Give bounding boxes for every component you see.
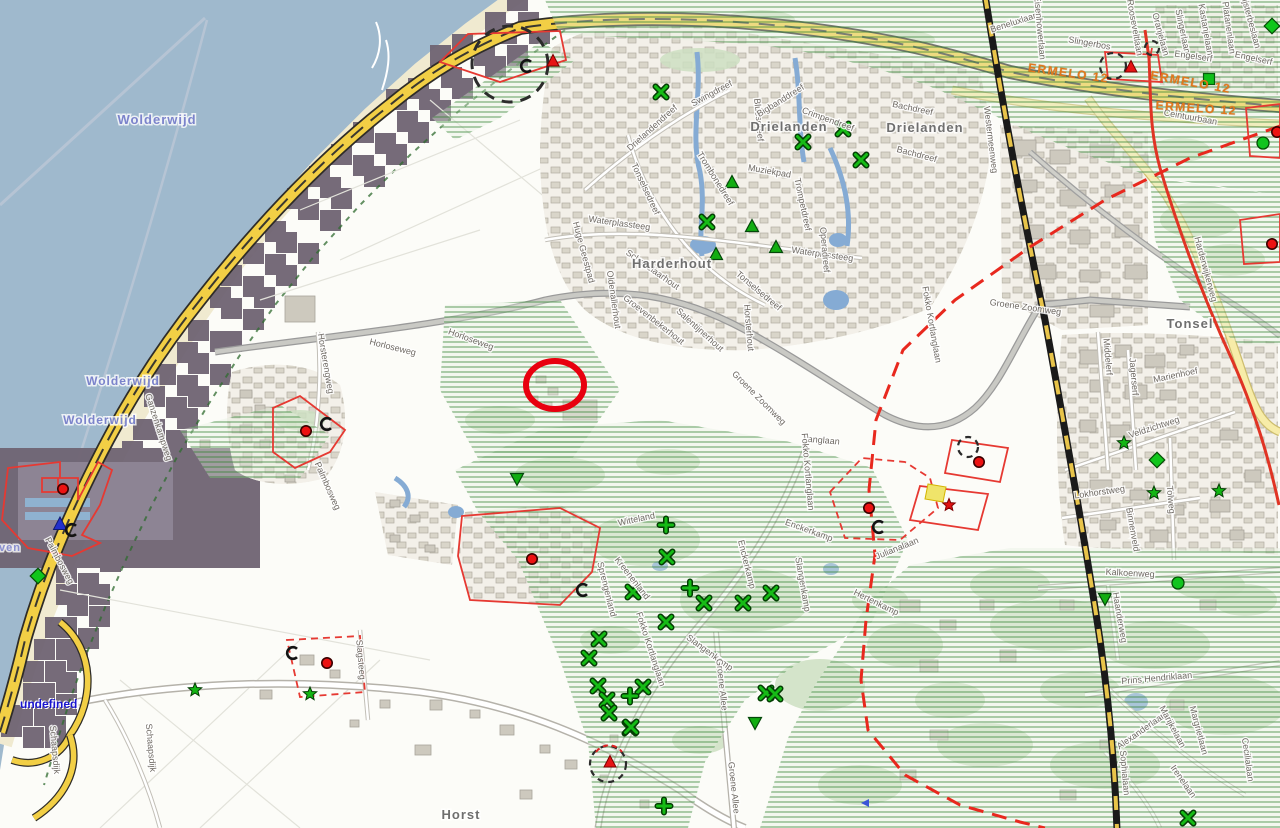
map-geometry xyxy=(140,548,160,568)
marker-green-x[interactable] xyxy=(856,155,867,166)
map-geometry xyxy=(23,727,44,748)
marker-green-x[interactable] xyxy=(662,552,673,563)
place-label: Harderhout xyxy=(632,256,712,271)
map-geometry xyxy=(220,528,240,548)
map-geometry xyxy=(240,548,260,568)
map-geometry xyxy=(1172,577,1184,589)
marker-green-x[interactable] xyxy=(702,217,713,228)
map-geometry xyxy=(0,448,20,468)
marker-red-dot[interactable] xyxy=(527,554,537,564)
map-geometry xyxy=(188,320,209,341)
marker-green-x[interactable] xyxy=(1183,813,1194,824)
marker-red-dot[interactable] xyxy=(1272,127,1280,137)
building xyxy=(330,670,340,678)
map-geometry xyxy=(298,243,319,264)
map-geometry xyxy=(220,488,240,508)
map-geometry xyxy=(276,232,297,253)
map-geometry xyxy=(180,528,200,548)
marker-green-x[interactable] xyxy=(798,137,809,148)
marker-green-x[interactable] xyxy=(770,689,781,700)
map-geometry xyxy=(89,606,110,627)
pond xyxy=(829,233,847,247)
map-geometry xyxy=(200,548,220,568)
building xyxy=(1125,265,1147,279)
map-geometry xyxy=(188,353,209,374)
marker-green-x[interactable] xyxy=(661,617,672,628)
map-geometry xyxy=(180,508,200,528)
marker-red-dot[interactable] xyxy=(322,658,332,668)
map-geometry xyxy=(1272,127,1280,137)
place-label: Drielanden xyxy=(886,120,963,135)
marker-green-x[interactable] xyxy=(626,722,637,733)
map-geometry xyxy=(120,548,140,568)
building xyxy=(390,500,400,507)
building xyxy=(350,720,359,727)
place-label: Horst xyxy=(442,807,481,822)
map-geometry xyxy=(89,584,110,605)
marina-water xyxy=(25,512,90,520)
marker-green-x[interactable] xyxy=(604,708,615,719)
marker-red-dot[interactable] xyxy=(864,503,874,513)
map-geometry xyxy=(180,548,200,568)
map-geometry xyxy=(301,426,311,436)
map-geometry xyxy=(188,386,209,407)
building xyxy=(1145,355,1165,367)
map-geometry xyxy=(20,548,40,568)
building xyxy=(1210,500,1230,512)
map-geometry xyxy=(1267,239,1277,249)
building xyxy=(390,535,400,542)
building xyxy=(410,515,420,522)
marker-green-x[interactable] xyxy=(766,588,777,599)
marker-green-x[interactable] xyxy=(638,682,649,693)
building xyxy=(1100,520,1116,530)
marker-red-dot[interactable] xyxy=(301,426,311,436)
map-geometry xyxy=(34,639,55,660)
building xyxy=(1150,530,1168,542)
marker-green-x[interactable] xyxy=(699,598,710,609)
marker-red-dot[interactable] xyxy=(974,457,984,467)
building xyxy=(425,545,435,552)
building xyxy=(540,745,550,753)
building xyxy=(430,700,442,710)
map-geometry xyxy=(1257,137,1269,149)
marker-green-x[interactable] xyxy=(738,598,749,609)
map-geometry xyxy=(221,298,242,319)
place-label: Wolderwijd xyxy=(63,413,137,427)
building xyxy=(1050,150,1070,164)
map-geometry xyxy=(527,554,537,564)
marker-green-x[interactable] xyxy=(656,87,667,98)
building xyxy=(415,745,431,755)
building xyxy=(1090,305,1114,317)
map-geometry xyxy=(240,488,260,508)
building xyxy=(470,710,480,718)
building xyxy=(380,700,390,708)
highlighted-building[interactable] xyxy=(925,484,946,502)
map-geometry xyxy=(200,488,220,508)
building xyxy=(1080,420,1096,432)
map-geometry xyxy=(331,188,352,209)
marker-green-x[interactable] xyxy=(584,653,595,664)
building xyxy=(520,790,532,799)
map-geometry xyxy=(507,0,528,11)
place-label: Tonsel xyxy=(1167,316,1214,331)
pond xyxy=(823,290,849,310)
place-label: Wolderwijd xyxy=(86,374,160,388)
building xyxy=(1070,230,1090,244)
map-geometry xyxy=(177,408,198,429)
map-geometry xyxy=(160,548,180,568)
map-geometry xyxy=(100,548,120,568)
map-geometry xyxy=(320,210,341,231)
map-viewport[interactable]: PalmboswegPalmboswegGanzenkampwegHorster… xyxy=(0,0,1280,828)
building xyxy=(1180,345,1194,355)
marker-green-x[interactable] xyxy=(593,681,604,692)
status-text: undefined xyxy=(20,697,77,711)
map-geometry xyxy=(200,508,220,528)
map-geometry xyxy=(974,457,984,467)
marker-green-x[interactable] xyxy=(602,695,613,706)
map-geometry xyxy=(58,484,68,494)
marker-green-circle[interactable] xyxy=(1257,137,1269,149)
map-canvas[interactable]: PalmboswegPalmboswegGanzenkampwegHorster… xyxy=(0,0,1280,828)
marker-red-dot[interactable] xyxy=(1267,239,1277,249)
building xyxy=(300,655,314,665)
building xyxy=(1130,490,1148,500)
map-geometry xyxy=(864,503,874,513)
building xyxy=(1160,390,1176,400)
building xyxy=(285,296,315,322)
building xyxy=(500,725,514,735)
building xyxy=(1080,270,1100,282)
map-geometry xyxy=(220,508,240,528)
building xyxy=(1230,530,1244,540)
place-label: ven xyxy=(0,542,21,554)
map-geometry xyxy=(67,595,88,616)
map-geometry xyxy=(200,528,220,548)
marker-red-dot[interactable] xyxy=(58,484,68,494)
map-geometry xyxy=(180,488,200,508)
map-geometry xyxy=(322,658,332,668)
building xyxy=(240,390,252,398)
building xyxy=(1090,380,1108,392)
marker-green-circle[interactable] xyxy=(1172,577,1184,589)
map-geometry xyxy=(386,144,407,165)
building xyxy=(260,690,272,699)
map-geometry xyxy=(276,265,297,286)
place-label: Wolderwijd xyxy=(117,112,196,127)
marker-green-x[interactable] xyxy=(594,634,605,645)
building xyxy=(1245,470,1261,482)
building xyxy=(1220,430,1238,440)
map-geometry xyxy=(240,508,260,528)
map-geometry xyxy=(220,548,240,568)
map-geometry xyxy=(240,528,260,548)
map-geometry xyxy=(243,309,264,330)
place-label: Drielanden xyxy=(750,119,827,134)
map-geometry xyxy=(180,468,200,488)
building xyxy=(565,760,577,769)
map-geometry xyxy=(0,468,20,488)
map-geometry xyxy=(254,287,275,308)
